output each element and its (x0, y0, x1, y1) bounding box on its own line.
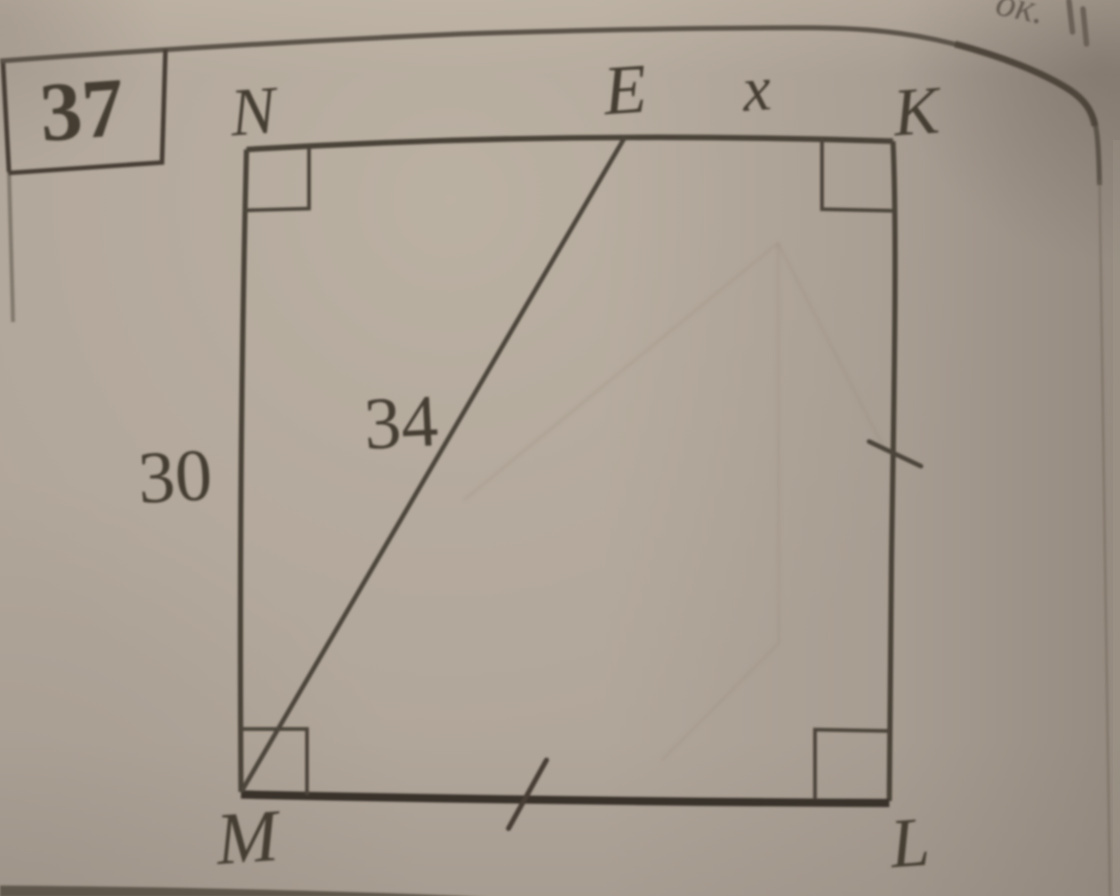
svg-text:x: x (739, 52, 773, 125)
svg-text:N: N (227, 71, 282, 150)
svg-text:K: K (890, 71, 945, 150)
svg-text:34: 34 (362, 380, 440, 466)
svg-text:M: M (212, 795, 285, 881)
svg-text:37: 37 (37, 61, 128, 160)
svg-text:30: 30 (136, 434, 214, 520)
svg-text:E: E (600, 51, 649, 131)
svg-text:L: L (887, 804, 932, 884)
